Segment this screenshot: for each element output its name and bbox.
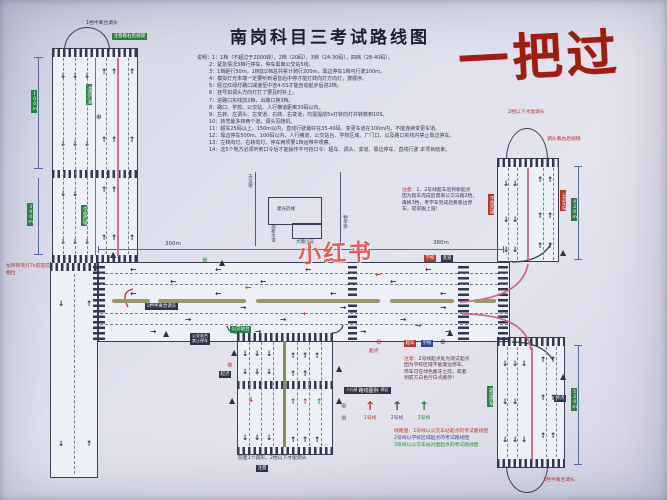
inset-street-left-label: 天龙街 [247, 174, 252, 188]
lane-divider [100, 324, 508, 325]
dimension-tick [98, 246, 99, 253]
route-line [527, 168, 529, 260]
dimension-line [356, 249, 504, 250]
lane-arrow-icon: ← [130, 290, 136, 298]
school-zone-tag-right: 学校区域 [488, 194, 494, 215]
lane-arrow-icon: → [340, 304, 346, 312]
notice-right-line4: 车，提前跟上道！ [402, 207, 477, 213]
dimension-label-380m: 380m [433, 240, 449, 246]
lane-divider [508, 168, 509, 260]
lane-divider [273, 342, 274, 446]
legend-items: ↑ 1号线 ↑ 2号线 ↑ 3号线 [362, 400, 432, 421]
lane-arrow-icon: ↓ [242, 434, 248, 442]
start-point-label: 起点 [369, 349, 379, 355]
lane-arrow-icon: → [280, 316, 286, 324]
dimension-tick [574, 259, 582, 260]
legend-label: 1号线 [364, 414, 377, 421]
lane-divider [100, 284, 508, 285]
warning-triangle-icon: ▲ [560, 249, 566, 257]
route-map-photo: 南岗科目三考试路线图 一把过 说明：1：1档（不超过于2000转），2档（20码… [0, 0, 667, 500]
lane-arrow-icon: ↑ [290, 436, 296, 444]
lane-arrow-icon: ↓ [266, 368, 272, 376]
lane-arrow-icon: ↓ [58, 440, 64, 448]
school-chip-bottom: 学校 [421, 340, 433, 347]
warning-triangle-icon: ▲ [163, 330, 169, 338]
circle-sign-icon: ⊕ [96, 114, 102, 121]
median-line [283, 341, 286, 447]
notice-right-line1: 1、2号线超车后到新起点 [416, 188, 470, 193]
route-arrow-icon: ↑ [419, 400, 429, 412]
lane-divider [321, 342, 322, 446]
bus-stop-sign-line2: 禁止停车 [192, 339, 208, 344]
lane-divider [261, 342, 262, 446]
lane-divider [100, 273, 508, 274]
legend-description-line: 2号线以学校区域起点的考试路线图 [394, 436, 488, 443]
notice-bottom-line4: 到前方白色行白点路停！ [404, 376, 469, 382]
inset-building-label: 建光药械 [277, 206, 295, 212]
school-zone-tag-left: 学校区域 [81, 205, 87, 226]
uturn-note-top-right-2: 调头看右后视镜 [547, 137, 581, 143]
lane-arrow-icon: ↑ [302, 370, 308, 378]
dimension-line [38, 178, 39, 254]
legend-descriptions: 线路图：1号线以公交车站起点的考试路线图2号线以学校区域起点的考试路线图3号线以… [394, 429, 488, 450]
warning-triangle-icon: ▲ [560, 373, 566, 381]
dimension-label-420m: 420m [571, 198, 577, 221]
lane-divider [100, 313, 508, 314]
uturn-note-bottom-right: 1档半离合调头 [543, 478, 575, 484]
lane-arrow-icon: ↓ [242, 368, 248, 376]
legend-description-line: 3号线以公交车站对面起点的考试路线图 [394, 443, 488, 450]
lane-arrow-icon: ↑ [314, 436, 320, 444]
dimension-label-520m: 520m [571, 388, 577, 411]
dimension-tick [574, 166, 582, 167]
dimension-label-340m: 340m [27, 203, 33, 226]
dimension-line [38, 57, 39, 168]
lane-arrow-icon: → [150, 304, 156, 312]
lane-arrow-icon: ↑ [86, 300, 92, 308]
notice-right-prefix: 注意： [402, 188, 416, 193]
legend-label: 2号线 [391, 414, 404, 421]
lane-arrow-icon: ↑ [302, 436, 308, 444]
route-arrow-icon: ↑ [365, 400, 375, 412]
lane-arrow-icon: ↓ [254, 434, 260, 442]
legend-item: ↑ 1号线 [362, 400, 378, 421]
warning-triangle-icon: ▲ [229, 397, 235, 405]
notice-bottom: 注意：2号线起点处为测试起点 因为学校区域不能靠边停车， 停车可在绿色路牙之前，… [404, 357, 469, 383]
watermark: 小红书 [297, 233, 373, 270]
inset-street-right-label: 物华街 [342, 215, 347, 229]
lane-arrow-icon: ← [440, 290, 446, 298]
legend-label: 3号线 [418, 414, 431, 421]
legend-description-line: 线路图：1号线以公交车站起点的考试路线图 [394, 429, 488, 436]
route-arrow-icon: ↑ [392, 400, 402, 412]
circle-sign-icon: ⊕ [227, 362, 233, 369]
notice-right: 注意：1、2号线超车后到新起点 因为超车完成后需离公交马路2档， 再换3档，考学… [402, 188, 477, 214]
lane-arrow-icon: ↓ [242, 350, 248, 358]
lane-divider [63, 58, 64, 254]
lane-divider [128, 58, 129, 254]
circle-sign-icon: ⊕ [376, 339, 382, 346]
circle-sign-icon: ⊕ [202, 257, 208, 264]
lane-divider [543, 168, 544, 260]
lane-arrow-icon: → [400, 316, 406, 324]
dimension-line [578, 345, 579, 465]
lane-divider [249, 342, 250, 446]
notice-bottom-line1: 2号线起点处为测试起点 [418, 357, 469, 362]
warning-triangle-icon: ▲ [110, 251, 116, 259]
lane-arrow-icon: ↑ [290, 352, 296, 360]
bus-stop-chip: 公交站台 [230, 326, 251, 333]
dimension-tick [34, 57, 43, 58]
lane-arrow-icon: ↓ [58, 300, 64, 308]
notice-bottom-line2: 因为学校区域不能靠边停车， [404, 363, 469, 369]
lane-arrow-icon: ↓ [521, 436, 527, 444]
pull-over-tag: 靠边停车 [487, 386, 493, 407]
warning-triangle-icon: ▲ [219, 259, 225, 267]
inset-street-line [255, 172, 256, 246]
lane-arrow-icon: ← [330, 290, 336, 298]
lane-arrow-icon: ↑ [86, 440, 92, 448]
dimension-tick [574, 345, 582, 346]
warning-triangle-icon: ▲ [447, 329, 453, 337]
lane-arrow-icon: ↑ [129, 68, 135, 76]
dimension-label-300m: 300m [165, 241, 181, 247]
lane-arrow-icon: ↓ [266, 434, 272, 442]
median-bar [390, 299, 454, 303]
inset-street-bottom-left-label: 南新大道 [270, 224, 275, 242]
bus-station-tag-right: 公交车站 [560, 190, 566, 211]
lane-divider [74, 274, 75, 474]
lane-divider [517, 168, 518, 260]
lane-divider [87, 58, 88, 254]
lane-arrow-icon: ↑ [302, 352, 308, 360]
lane-arrow-icon: → [150, 328, 156, 336]
bottom-caption: 前面1个圆形，2档以下才能调头 [238, 456, 306, 462]
dimension-label-100m: 100m [31, 90, 37, 113]
school-chip-top: 学校 [424, 255, 436, 262]
route-line [531, 347, 533, 459]
lane-divider [546, 347, 547, 457]
lane-arrow-icon: ↑ [302, 398, 308, 406]
lane-arrow-icon: → [360, 328, 366, 336]
dimension-tick [34, 168, 43, 169]
warning-triangle-icon: ▲ [336, 365, 342, 373]
median-bar [474, 299, 496, 303]
circle-sign-icon: ⊕ [440, 339, 446, 346]
lane-arrow-icon: → [185, 316, 191, 324]
lane-divider [75, 58, 76, 254]
lane-arrow-icon: → [240, 304, 246, 312]
lane-arrow-icon: ← [215, 290, 221, 298]
notice-right-line2: 因为超车完成后需离公交马路2档， [402, 194, 477, 200]
overtake-chip: 超车 [404, 340, 416, 347]
left-turn-note-line2: 相位 [6, 271, 16, 277]
lane-arrow-icon: ↓ [254, 368, 260, 376]
dimension-line [578, 166, 579, 260]
lane-arrow-icon: ↑ [290, 370, 296, 378]
notice-bottom-prefix: 注意： [404, 357, 418, 362]
lane-arrow-icon: ↑ [129, 234, 135, 242]
median-bar [158, 299, 246, 303]
change-lane-chip-top: 变道 [441, 255, 453, 262]
mirror-note-tag: 注意看右后视镜 [112, 33, 147, 40]
lane-arrow-icon: ↓ [266, 350, 272, 358]
legend-item: ↑ 2号线 [389, 400, 405, 421]
warning-triangle-icon: ▲ [231, 349, 237, 357]
lane-arrow-icon: ↑ [129, 136, 135, 144]
lane-arrow-icon: → [440, 304, 446, 312]
bottom-notice-chip: 注意 [256, 465, 268, 472]
lane-arrow-icon: ↓ [521, 360, 527, 368]
lane-arrow-icon: ↑ [290, 398, 296, 406]
uturn-note-top-right-1: 2档以下才能调头 [508, 110, 545, 116]
lane-divider [106, 58, 107, 254]
bus-stop-sign: 公交站台 禁止停车 [190, 333, 210, 345]
lane-center-line [95, 58, 96, 255]
lane-arrow-icon: ← [245, 284, 251, 292]
legend-header: 路线图例 [357, 387, 380, 394]
median-bar [112, 299, 150, 303]
lane-divider [517, 347, 518, 457]
lane-divider [553, 168, 554, 260]
circle-sign-icon: ⊕ [341, 415, 347, 422]
lane-divider [309, 342, 310, 446]
route-line [117, 58, 119, 256]
lane-arrow-icon: → [255, 328, 261, 336]
lane-divider [297, 342, 298, 446]
dimension-tick [574, 464, 582, 465]
uturn-note-top-left: 1档半离合调头 [86, 21, 118, 27]
lane-divider [556, 347, 557, 457]
start-point-chip: 起点 [219, 371, 231, 378]
lane-divider [507, 347, 508, 457]
circle-sign-icon: ⊕ [341, 403, 347, 410]
lane-arrow-icon: ↓ [254, 350, 260, 358]
median-bar [256, 299, 380, 303]
legend-item: ↑ 3号线 [416, 400, 432, 421]
lane-arrow-icon: ↑ [314, 352, 320, 360]
dimension-tick [34, 254, 43, 255]
left-turn-note-line1: 左转转弯灯7s前提前 [6, 264, 50, 270]
